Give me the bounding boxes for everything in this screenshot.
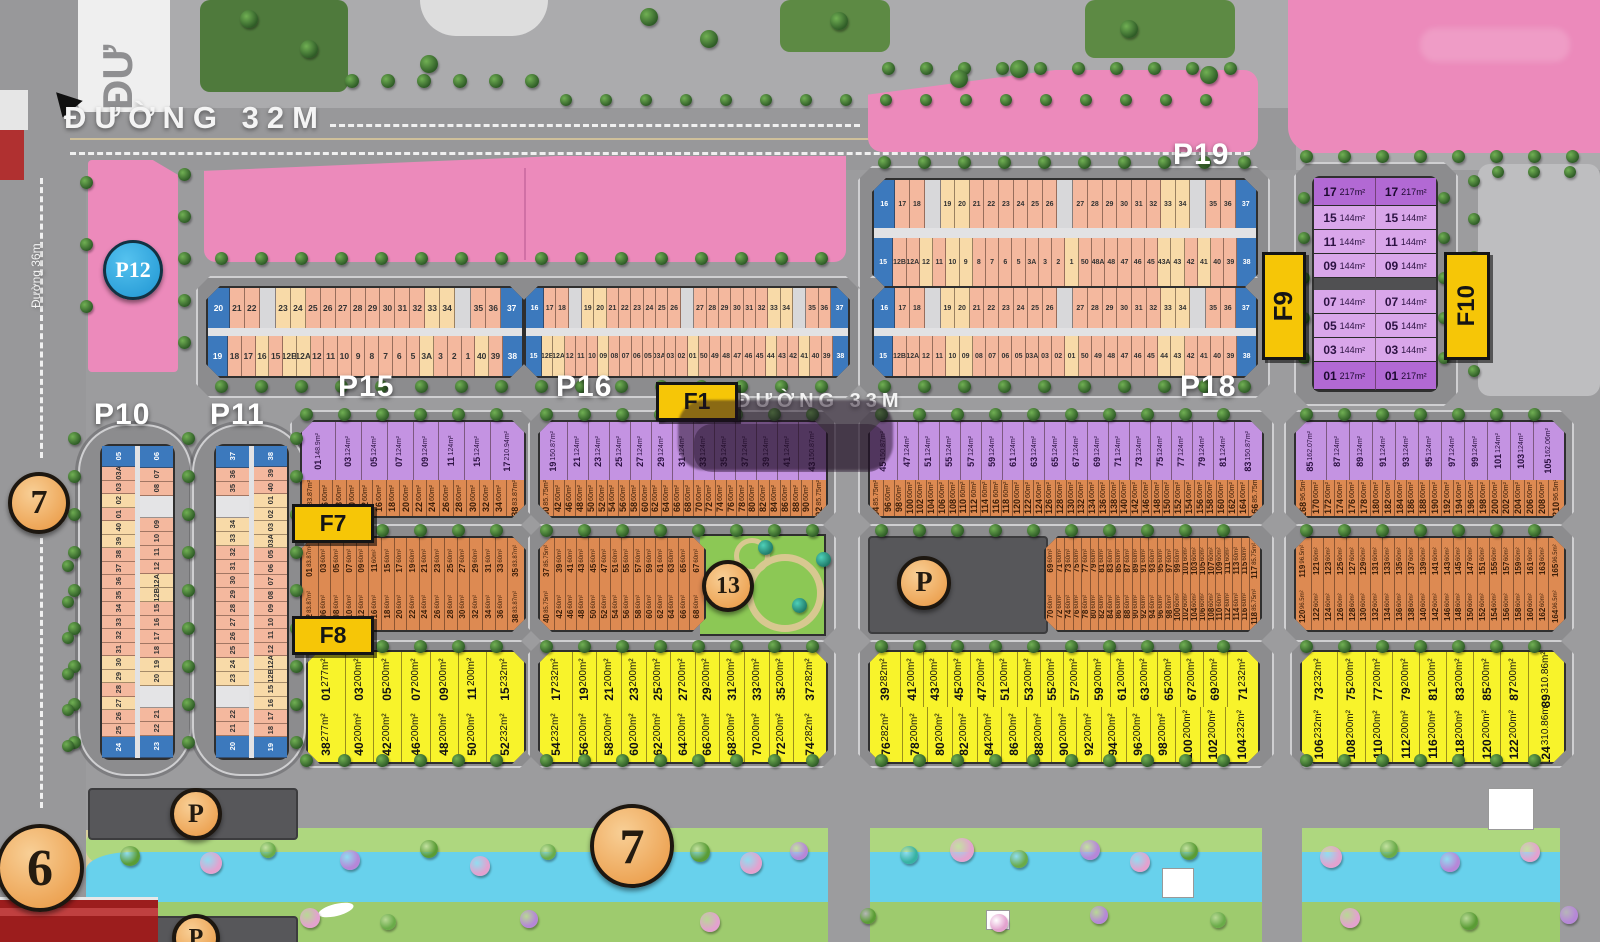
plot-cell[interactable]: 27	[216, 616, 249, 630]
plot-cell[interactable]: 5060m²	[589, 584, 600, 630]
plot-cell[interactable]: 02	[102, 494, 135, 508]
plot-cell[interactable]: 22	[216, 708, 249, 722]
plot-cell[interactable]: 17660m²	[1347, 480, 1359, 516]
plot-cell[interactable]: 11460m²	[1233, 584, 1241, 630]
plot-cell[interactable]: 32	[1147, 180, 1162, 228]
plot-cell[interactable]: 38	[102, 548, 135, 562]
plot-cell[interactable]: 3260m²	[470, 584, 483, 630]
plot-cell[interactable]: 17260m²	[1324, 480, 1336, 516]
plot-cell[interactable]: 2460m²	[420, 584, 433, 630]
plot-cell[interactable]: 14760m²	[1466, 538, 1478, 584]
plot-cell[interactable]: 20	[955, 288, 970, 328]
plot-cell[interactable]: 12	[254, 643, 287, 657]
plot-cell[interactable]: 01	[102, 508, 135, 522]
plot-cell[interactable]: 21200m²	[597, 652, 622, 707]
plot-cell[interactable]: 5660m²	[622, 584, 633, 630]
plot-cell[interactable]: 09	[140, 518, 173, 532]
plot-cell[interactable]: 19460m²	[1454, 480, 1466, 516]
plot-cell[interactable]: 13960m²	[1419, 538, 1431, 584]
plot-cell[interactable]: 5460m²	[608, 480, 619, 516]
plot-cell[interactable]: 30	[1117, 180, 1132, 228]
plot-cell[interactable]: 93124m²	[1396, 422, 1419, 480]
plot-cell[interactable]: 01217m²	[1376, 362, 1437, 390]
plot-cell[interactable]: 12960m²	[1359, 538, 1371, 584]
plot-cell[interactable]: 11	[140, 546, 173, 560]
plot-cell[interactable]: 29	[719, 288, 731, 328]
plot-cell[interactable]: 13560m²	[1395, 538, 1407, 584]
plot-cell[interactable]: 34	[102, 602, 135, 616]
plot-cell[interactable]: 39282m²	[870, 652, 901, 707]
plot-cell[interactable]: 48	[721, 336, 732, 376]
plot-cell[interactable]: 26	[321, 288, 336, 328]
plot-cell[interactable]: 1	[462, 336, 476, 376]
plot-cell[interactable]: 5760m²	[634, 538, 645, 584]
plot-cell[interactable]: 7660m²	[1074, 584, 1082, 630]
plot-cell[interactable]: 7360m²	[1065, 538, 1073, 584]
plot-cell[interactable]: 9160m²	[1141, 538, 1149, 584]
plot-cell[interactable]: 10260m²	[916, 480, 927, 516]
plot-cell[interactable]: 19860m²	[1478, 480, 1490, 516]
plot-cell[interactable]: 18	[910, 180, 925, 228]
plot-cell[interactable]: 80200m²	[928, 707, 953, 762]
plot-cell[interactable]: 12260m²	[1312, 584, 1324, 630]
plot-cell[interactable]: 35200m²	[770, 652, 795, 707]
plot-cell[interactable]: 15460m²	[1185, 480, 1196, 516]
plot-cell[interactable]: 18	[556, 288, 568, 328]
plot-cell[interactable]: 6060m²	[640, 480, 651, 516]
plot-cell[interactable]: 0360m²	[319, 538, 332, 584]
plot-cell[interactable]: 103124m²	[1511, 422, 1534, 480]
plot-cell[interactable]: 29	[1103, 180, 1118, 228]
plot-cell[interactable]: 6560m²	[679, 538, 690, 584]
plot-cell[interactable]: 9760m²	[1166, 538, 1174, 584]
plot-cell[interactable]: 7260m²	[1057, 584, 1065, 630]
plot-cell[interactable]: 55124m²	[940, 422, 961, 480]
plot-cell[interactable]: 3060m²	[467, 480, 480, 516]
plot-cell[interactable]: 7860m²	[737, 480, 748, 516]
plot-cell[interactable]: 11460m²	[981, 480, 992, 516]
plot-cell[interactable]: 18260m²	[1383, 480, 1395, 516]
plot-cell[interactable]: 29	[216, 588, 249, 602]
plot-cell[interactable]: 3160m²	[483, 538, 496, 584]
plot-cell[interactable]: 13760m²	[1407, 538, 1419, 584]
plot-cell[interactable]: 32	[102, 629, 135, 643]
plot-cell[interactable]: 28	[102, 683, 135, 697]
plot-cell[interactable]: 24	[644, 288, 656, 328]
plot-cell[interactable]: 31	[1132, 288, 1147, 328]
plot-cell[interactable]: 19060m²	[1430, 480, 1442, 516]
plot-cell[interactable]: 71124m²	[1109, 422, 1130, 480]
plot-cell[interactable]: 26	[1043, 288, 1058, 328]
plot-cell[interactable]: 43	[777, 336, 788, 376]
plot-cell[interactable]: 05	[102, 446, 135, 467]
plot-cell[interactable]: 21	[140, 708, 173, 722]
plot-cell[interactable]: 01148.9m²	[302, 422, 336, 480]
plot-cell[interactable]: 6660m²	[673, 480, 684, 516]
plot-cell[interactable]: 10560m²	[1200, 538, 1208, 584]
plot-cell[interactable]: 16260m²	[1537, 584, 1549, 630]
plot-cell[interactable]: 2960m²	[470, 538, 483, 584]
plot-cell[interactable]: 02	[1052, 336, 1065, 376]
plot-cell[interactable]: 77124m²	[1172, 422, 1193, 480]
plot-cell[interactable]: 9360m²	[1149, 538, 1157, 584]
plot-cell[interactable]: 05	[1012, 336, 1025, 376]
plot-cell[interactable]: 4360m²	[577, 538, 588, 584]
plot-cell[interactable]: 22	[984, 288, 999, 328]
plot-cell[interactable]: 20260m²	[1502, 480, 1514, 516]
plot-cell[interactable]: 7960m²	[1091, 538, 1099, 584]
plot-cell[interactable]: 9460m²	[1149, 584, 1157, 630]
plot-cell[interactable]: 11260m²	[970, 480, 981, 516]
plot-cell[interactable]: 23	[999, 288, 1014, 328]
plot-cell[interactable]: 27200m²	[671, 652, 696, 707]
plot-cell[interactable]: 36	[1221, 288, 1236, 328]
plot-cell[interactable]: 64200m²	[671, 707, 696, 762]
plot-cell[interactable]: 7160m²	[1057, 538, 1065, 584]
plot-cell[interactable]: 25	[306, 288, 321, 328]
plot-cell[interactable]: 28	[216, 602, 249, 616]
plot-cell[interactable]: 25124m²	[610, 422, 631, 480]
plot-cell[interactable]: 7460m²	[1065, 584, 1073, 630]
plot-cell[interactable]: 07	[620, 336, 631, 376]
plot-cell[interactable]: 79200m²	[1393, 652, 1420, 707]
plot-cell[interactable]: 11160m²	[1225, 538, 1233, 584]
plot-cell[interactable]: 16	[256, 336, 270, 376]
plot-cell[interactable]: 8660m²	[781, 480, 792, 516]
plot-cell[interactable]: 7660m²	[727, 480, 738, 516]
plot-cell[interactable]: 06	[632, 336, 643, 376]
plot-cell[interactable]: 09144m²	[1314, 254, 1376, 278]
plot-cell[interactable]: 14660m²	[1442, 584, 1454, 630]
plot-cell[interactable]: 10960m²	[1216, 538, 1224, 584]
plot-cell[interactable]: 70200m²	[745, 707, 770, 762]
plot-cell[interactable]: 33	[102, 616, 135, 630]
plot-cell[interactable]: 16360m²	[1537, 538, 1549, 584]
plot-cell[interactable]: 19200m²	[573, 652, 598, 707]
plot-cell[interactable]: 31	[744, 288, 756, 328]
plot-cell[interactable]: 22	[619, 288, 631, 328]
plot-cell[interactable]: 14860m²	[1152, 480, 1163, 516]
plot-cell[interactable]: 27	[1073, 288, 1088, 328]
plot-cell[interactable]: 42	[788, 336, 799, 376]
plot-cell[interactable]: 76282m²	[870, 707, 903, 762]
plot-cell[interactable]: 09144m²	[1376, 254, 1437, 278]
plot-cell[interactable]: 33	[1161, 288, 1176, 328]
plot-cell[interactable]: 35	[1206, 288, 1221, 328]
plot-cell[interactable]: 12B	[893, 336, 906, 376]
plot-cell[interactable]: 5060m²	[587, 480, 598, 516]
plot-cell[interactable]: 2860m²	[454, 480, 467, 516]
plot-cell[interactable]: 8060m²	[748, 480, 759, 516]
plot-cell[interactable]: 4260m²	[554, 480, 565, 516]
plot-cell[interactable]: 79124m²	[1193, 422, 1214, 480]
plot-cell[interactable]: 30	[731, 288, 743, 328]
plot-cell[interactable]: 10260m²	[1183, 584, 1191, 630]
plot-cell[interactable]: 18660m²	[1407, 480, 1419, 516]
plot-cell[interactable]: 8460m²	[1107, 584, 1115, 630]
plot-cell[interactable]: 4560m²	[589, 538, 600, 584]
plot-cell[interactable]: 2	[448, 336, 462, 376]
plot-cell[interactable]: 16060m²	[1525, 584, 1537, 630]
plot-cell[interactable]: 5860m²	[630, 480, 641, 516]
plot-cell[interactable]: 17	[895, 288, 910, 328]
plot-cell[interactable]: 27	[1073, 180, 1088, 228]
plot-cell[interactable]: 35	[102, 589, 135, 603]
plot-cell[interactable]: 03	[102, 481, 135, 495]
plot-cell[interactable]: 11860m²	[1002, 480, 1013, 516]
plot-cell[interactable]: 13860m²	[1110, 480, 1121, 516]
plot-cell[interactable]: 45	[1145, 336, 1158, 376]
plot-cell[interactable]: 1760m²	[395, 538, 408, 584]
plot-cell[interactable]: 05124m²	[362, 422, 388, 480]
plot-cell[interactable]: 6060m²	[645, 584, 656, 630]
plot-cell[interactable]: 8860m²	[1124, 584, 1132, 630]
plot-cell[interactable]: 12A	[140, 574, 173, 588]
plot-cell[interactable]: 50	[1079, 238, 1092, 286]
plot-cell[interactable]: 35	[1206, 180, 1221, 228]
plot-cell[interactable]: 15960m²	[1514, 538, 1526, 584]
plot-cell[interactable]: 07124m²	[388, 422, 414, 480]
plot-cell[interactable]: 39	[489, 336, 503, 376]
plot-cell[interactable]: 20	[955, 180, 970, 228]
plot-cell[interactable]: 2360m²	[432, 538, 445, 584]
plot-cell[interactable]: 31	[1132, 180, 1147, 228]
plot-cell[interactable]: 05144m²	[1376, 314, 1437, 338]
plot-cell[interactable]: 35	[806, 288, 818, 328]
plot-cell[interactable]: 18	[140, 644, 173, 658]
plot-cell[interactable]: 34	[781, 288, 793, 328]
plot-cell[interactable]: 31	[102, 643, 135, 657]
plot-cell[interactable]: 36	[819, 288, 831, 328]
plot-cell[interactable]: 38	[1237, 238, 1255, 286]
plot-cell[interactable]: 12460m²	[1034, 480, 1045, 516]
plot-cell[interactable]: 73232m²	[1302, 652, 1338, 707]
plot-cell[interactable]: 8960m²	[1133, 538, 1141, 584]
plot-cell[interactable]: 21	[970, 288, 985, 328]
plot-cell[interactable]: 42200m²	[374, 707, 402, 762]
plot-cell[interactable]: 40	[254, 481, 287, 495]
plot-cell[interactable]: 01	[1065, 336, 1078, 376]
plot-cell[interactable]: 57200m²	[1064, 652, 1087, 707]
plot-cell[interactable]: 13260m²	[1077, 480, 1088, 516]
plot-cell[interactable]: 07144m²	[1314, 290, 1376, 314]
plot-cell[interactable]: 35	[216, 482, 249, 496]
plot-cell[interactable]: 11144m²	[1376, 230, 1437, 254]
plot-cell[interactable]: 21124m²	[568, 422, 589, 480]
plot-cell[interactable]: 0760m²	[344, 538, 357, 584]
plot-cell[interactable]: 33	[768, 288, 780, 328]
plot-cell[interactable]: 22	[140, 722, 173, 736]
plot-cell[interactable]: 10860m²	[949, 480, 960, 516]
plot-cell[interactable]: 44	[1158, 336, 1171, 376]
plot-cell[interactable]: 12560m²	[1335, 538, 1347, 584]
plot-cell[interactable]: 63200m²	[1134, 652, 1157, 707]
plot-cell[interactable]: 10060m²	[1174, 584, 1182, 630]
plot-cell[interactable]: 13160m²	[1371, 538, 1383, 584]
plot-cell[interactable]: 15860m²	[1514, 584, 1526, 630]
plot-cell[interactable]: 06	[254, 562, 287, 576]
plot-cell[interactable]: 31	[395, 288, 410, 328]
plot-cell[interactable]: 24	[291, 288, 306, 328]
plot-cell[interactable]: 87200m²	[1501, 652, 1528, 707]
plot-cell[interactable]: 5560m²	[622, 538, 633, 584]
plot-cell[interactable]: 67124m²	[1066, 422, 1087, 480]
plot-cell[interactable]: 11124m²	[439, 422, 465, 480]
plot-cell[interactable]: 34	[440, 288, 455, 328]
plot-cell[interactable]: 12660m²	[1335, 584, 1347, 630]
plot-cell[interactable]: 40200m²	[346, 707, 374, 762]
plot-cell[interactable]: 28	[351, 288, 366, 328]
plot-cell[interactable]: 09200m²	[431, 652, 459, 707]
plot-cell[interactable]: 09124m²	[414, 422, 440, 480]
plot-cell[interactable]: 1	[1065, 238, 1078, 286]
plot-cell[interactable]: 34	[1176, 288, 1191, 328]
plot-cell[interactable]: 10	[946, 336, 959, 376]
plot-cell[interactable]: 12A	[907, 238, 920, 286]
plot-cell[interactable]: 20	[140, 672, 173, 686]
plot-cell[interactable]: 3A	[420, 336, 434, 376]
plot-cell[interactable]: 10160m²	[1183, 538, 1191, 584]
plot-cell[interactable]: 26	[216, 630, 249, 644]
plot-cell[interactable]: 3260m²	[480, 480, 493, 516]
plot-cell[interactable]: 65124m²	[1045, 422, 1066, 480]
plot-cell[interactable]: 2660m²	[440, 480, 453, 516]
plot-cell[interactable]: 08	[973, 336, 986, 376]
plot-cell[interactable]: 17	[140, 630, 173, 644]
plot-cell[interactable]: 18460m²	[1395, 480, 1407, 516]
plot-cell[interactable]: 7060m²	[694, 480, 705, 516]
plot-cell[interactable]: 47	[1118, 336, 1131, 376]
plot-cell[interactable]: 15860m²	[1206, 480, 1217, 516]
plot-cell[interactable]: 47124m²	[898, 422, 919, 480]
plot-cell[interactable]: 8860m²	[791, 480, 802, 516]
plot-cell[interactable]: 28	[707, 288, 719, 328]
plot-cell[interactable]: 18	[228, 336, 242, 376]
plot-cell[interactable]: 05	[254, 548, 287, 562]
plot-cell[interactable]: 15260m²	[1174, 480, 1185, 516]
plot-cell[interactable]: 14660m²	[1142, 480, 1153, 516]
plot-cell[interactable]: 19660m²	[1466, 480, 1478, 516]
plot-cell[interactable]: 5160m²	[611, 538, 622, 584]
plot-cell[interactable]: 9	[960, 238, 973, 286]
plot-cell[interactable]: 3	[434, 336, 448, 376]
plot-cell[interactable]: 50	[699, 336, 710, 376]
plot-cell[interactable]: 12	[311, 336, 325, 376]
plot-cell[interactable]: 5	[1012, 238, 1025, 286]
plot-cell[interactable]: 36	[102, 575, 135, 589]
plot-cell[interactable]: 11260m²	[1225, 584, 1233, 630]
plot-cell[interactable]: 03A	[654, 336, 665, 376]
plot-cell[interactable]: 22	[984, 180, 999, 228]
plot-cell[interactable]: 3460m²	[483, 584, 496, 630]
plot-cell[interactable]: 17060m²	[1312, 480, 1324, 516]
plot-cell[interactable]: 67200m²	[1181, 652, 1204, 707]
plot-cell[interactable]: 75200m²	[1338, 652, 1365, 707]
plot-cell[interactable]: 2860m²	[445, 584, 458, 630]
plot-cell[interactable]: 95124m²	[1419, 422, 1442, 480]
plot-cell[interactable]: 17217m²	[1376, 178, 1437, 206]
plot-cell[interactable]: 29	[102, 670, 135, 684]
plot-cell[interactable]: 100200m²	[1176, 707, 1201, 762]
plot-cell[interactable]: 18	[254, 724, 287, 738]
plot-cell[interactable]: 27	[694, 288, 706, 328]
plot-cell[interactable]: 58200m²	[597, 707, 622, 762]
plot-cell[interactable]: 0560m²	[331, 538, 344, 584]
plot-cell[interactable]: 23	[631, 288, 643, 328]
plot-cell[interactable]: 6460m²	[662, 480, 673, 516]
plot-cell[interactable]: 15260m²	[1478, 584, 1490, 630]
plot-cell[interactable]: 12160m²	[1312, 538, 1324, 584]
plot-cell[interactable]: 34	[1176, 180, 1191, 228]
plot-cell[interactable]: 61124m²	[1003, 422, 1024, 480]
plot-cell[interactable]: 1960m²	[407, 538, 420, 584]
plot-cell[interactable]: 39	[822, 336, 833, 376]
plot-cell[interactable]: 11660m²	[1242, 584, 1250, 630]
plot-cell[interactable]: 16060m²	[1217, 480, 1228, 516]
plot-cell[interactable]: 01	[254, 494, 287, 508]
plot-cell[interactable]: 59124m²	[982, 422, 1003, 480]
plot-cell[interactable]: 14060m²	[1120, 480, 1131, 516]
plot-cell[interactable]: 48	[1105, 238, 1118, 286]
plot-cell[interactable]: 19	[140, 658, 173, 672]
plot-cell[interactable]: 03A	[254, 535, 287, 549]
plot-cell[interactable]: 41200m²	[901, 652, 924, 707]
plot-cell[interactable]: 05144m²	[1314, 314, 1376, 338]
plot-cell[interactable]: 31200m²	[720, 652, 745, 707]
plot-cell[interactable]: 41	[1198, 238, 1211, 286]
plot-cell[interactable]: 83150.87m²	[1235, 422, 1262, 480]
plot-cell[interactable]: 85162.07m²	[1296, 422, 1327, 480]
plot-cell[interactable]: 12A	[254, 656, 287, 670]
plot-cell[interactable]: 30	[216, 574, 249, 588]
plot-cell[interactable]: 99124m²	[1465, 422, 1488, 480]
plot-cell[interactable]: 8660m²	[1116, 584, 1124, 630]
plot-cell[interactable]: 10060m²	[906, 480, 917, 516]
plot-cell[interactable]: 12B	[140, 588, 173, 602]
plot-cell[interactable]: 2060m²	[400, 480, 413, 516]
plot-cell[interactable]: 03A	[1026, 336, 1039, 376]
plot-cell[interactable]: 60200m²	[622, 707, 647, 762]
plot-cell[interactable]: 17	[242, 336, 256, 376]
plot-cell[interactable]: 40	[1211, 238, 1224, 286]
plot-cell[interactable]: 25	[656, 288, 668, 328]
plot-cell[interactable]: 19	[254, 737, 287, 758]
plot-cell[interactable]: 25	[1028, 288, 1043, 328]
plot-cell[interactable]: 2060m²	[395, 584, 408, 630]
plot-cell[interactable]: 7260m²	[705, 480, 716, 516]
plot-cell[interactable]: 27	[102, 697, 135, 711]
plot-cell[interactable]: 14060m²	[1419, 584, 1431, 630]
plot-cell[interactable]: 12260m²	[1024, 480, 1035, 516]
plot-cell[interactable]: 43	[1171, 238, 1184, 286]
plot-cell[interactable]: 36	[486, 288, 501, 328]
plot-cell[interactable]: 19	[941, 180, 956, 228]
plot-cell[interactable]: 5460m²	[611, 584, 622, 630]
plot-cell[interactable]: 8760m²	[1124, 538, 1132, 584]
plot-cell[interactable]: 7860m²	[1082, 584, 1090, 630]
plot-cell[interactable]: 8260m²	[759, 480, 770, 516]
plot-cell[interactable]: 37282m²	[794, 652, 826, 707]
plot-cell[interactable]: 0960m²	[357, 538, 370, 584]
plot-cell[interactable]: 37	[216, 446, 249, 468]
plot-cell[interactable]: 21	[970, 180, 985, 228]
plot-cell[interactable]: 24	[216, 658, 249, 672]
plot-cell[interactable]: 9860m²	[1166, 584, 1174, 630]
plot-cell[interactable]: 07	[986, 336, 999, 376]
plot-cell[interactable]: 26	[1043, 180, 1058, 228]
plot-cell[interactable]: 38277m²	[308, 707, 346, 762]
plot-cell[interactable]: 45200m²	[948, 652, 971, 707]
